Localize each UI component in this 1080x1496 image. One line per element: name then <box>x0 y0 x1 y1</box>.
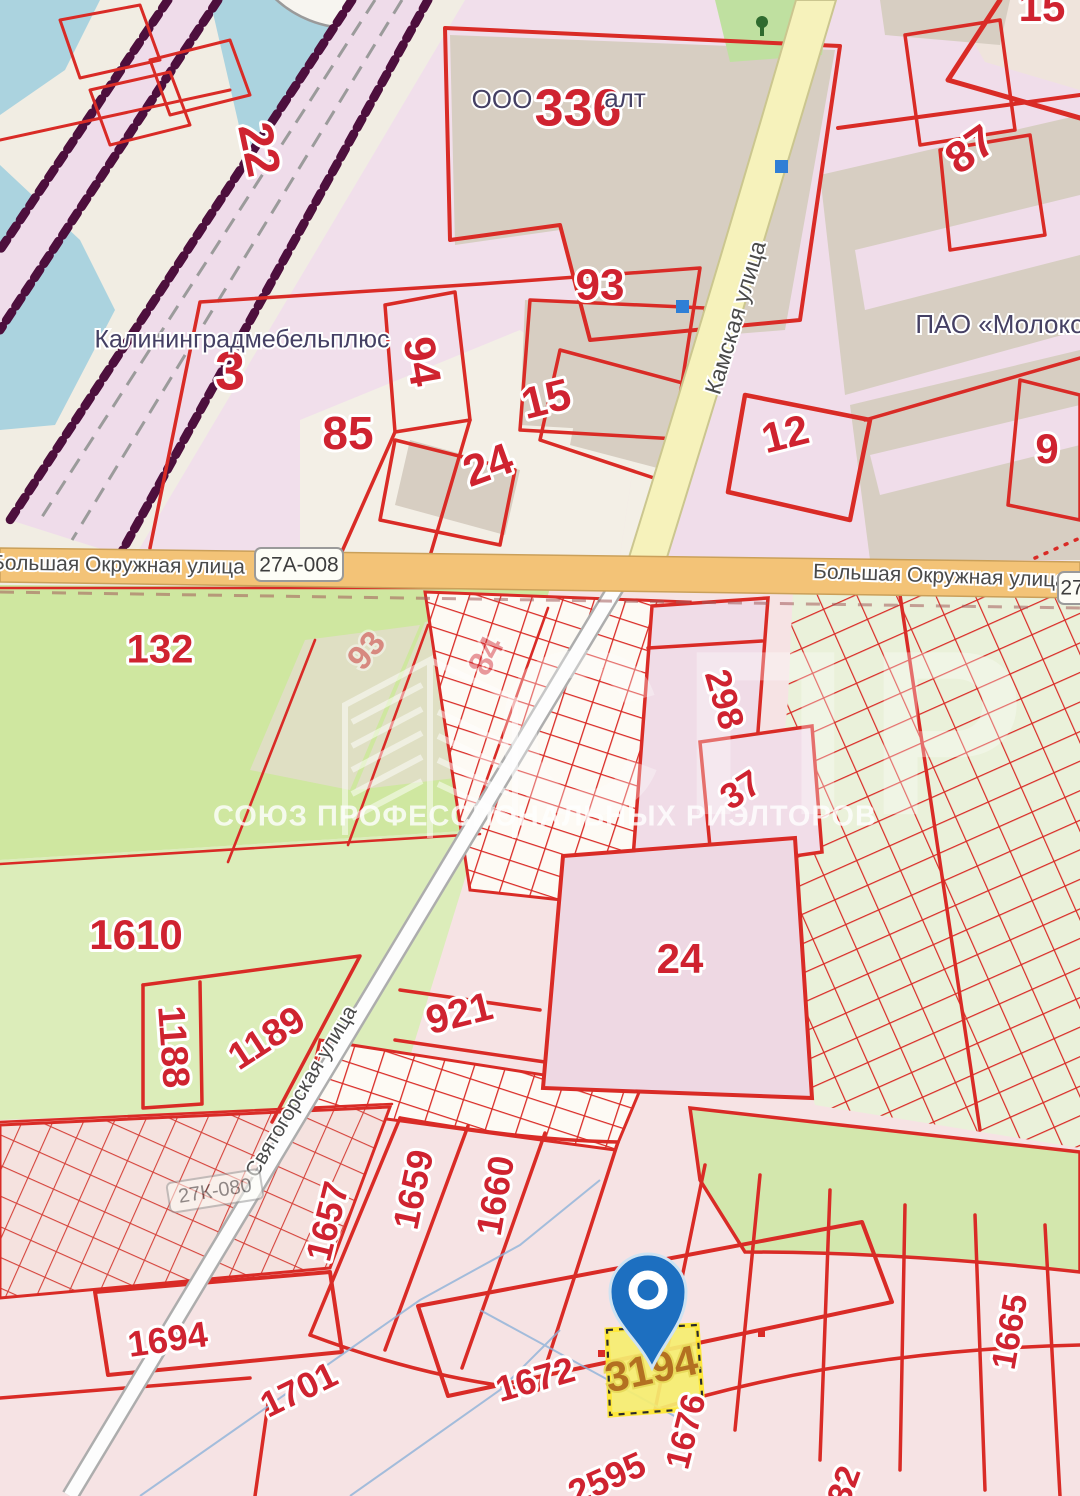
street-label-okruzhnaya-left: Большая Окружная улица <box>0 551 245 578</box>
parcel-number-22: 22 <box>227 118 290 181</box>
map-screenshot: СПР СОЮЗ ПРОФЕССИОНАЛЬНЫХ РИЭЛТОРОВ 2239… <box>0 0 1080 1496</box>
road-shield-label: 27А-008 <box>259 554 338 577</box>
parcel-number-132: 132 <box>127 628 194 672</box>
road-shield-okr-right: 27 <box>1058 572 1080 604</box>
parcel-number-24-big: 24 <box>657 935 704 982</box>
poi-label-alt: алт <box>604 83 646 113</box>
parcel-number-15-top: 15 <box>1019 0 1066 30</box>
poi-label-kaliningradmebelplus: Калининградмебельплюс <box>94 326 389 354</box>
road-shield-okr-left: 27А-008 <box>255 548 343 581</box>
parcel-number-1188: 1188 <box>149 1004 197 1089</box>
poi-label-pao-moloko: ПАО «Молоко <box>915 309 1080 339</box>
bus-stop-icon <box>775 160 788 173</box>
parcel-number-85: 85 <box>322 407 373 459</box>
cadastral-map[interactable]: СПР СОЮЗ ПРОФЕССИОНАЛЬНЫХ РИЭЛТОРОВ 2239… <box>0 0 1080 1496</box>
watermark-org-name: СОЮЗ ПРОФЕССИОНАЛЬНЫХ РИЭЛТОРОВ <box>213 801 877 833</box>
parcel-number-9: 9 <box>1035 425 1058 472</box>
parcel-number-93: 93 <box>576 261 625 310</box>
road-shield-label: 27 <box>1060 577 1080 600</box>
parcel-number-1610: 1610 <box>89 911 182 958</box>
bus-stop-icon <box>676 300 689 313</box>
parcel-number-94: 94 <box>393 333 450 390</box>
survey-dot <box>758 1330 765 1337</box>
poi-label-ooo: ООО <box>472 84 533 114</box>
